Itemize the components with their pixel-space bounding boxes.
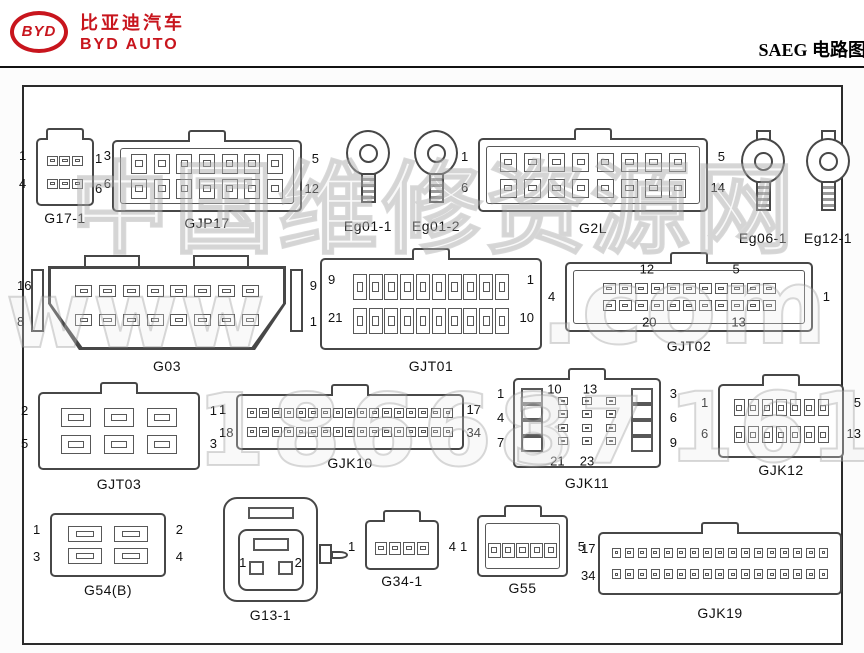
pin: [218, 285, 235, 297]
pin: [267, 179, 283, 199]
connector-label: GJT02: [667, 332, 712, 354]
connector-label: G17-1: [44, 206, 85, 226]
pin: [572, 153, 589, 172]
ring-terminal: [346, 130, 390, 203]
pin-number: 1: [460, 540, 467, 553]
pin-grid: [72, 276, 262, 334]
pin: [284, 408, 294, 418]
pin: [664, 548, 673, 558]
pin: [417, 542, 429, 555]
pin-grid: [610, 542, 830, 585]
pin: [131, 179, 147, 199]
connector-GJP17: 15612GJP17: [112, 140, 302, 212]
connector-G55: 15G55: [477, 515, 568, 577]
pin: [767, 569, 776, 579]
ring-terminal: [741, 130, 785, 211]
pin: [75, 285, 92, 297]
connector-body: [223, 497, 318, 602]
pin: [345, 427, 355, 437]
pin: [631, 404, 653, 420]
pin: [296, 408, 306, 418]
pin: [495, 308, 509, 334]
pin: [763, 283, 776, 294]
pin: [699, 300, 712, 311]
pin-number: 21: [328, 311, 342, 324]
big-pin-column: [631, 388, 653, 452]
pin: [603, 300, 616, 311]
connector-G2L: 15614G2L: [478, 138, 708, 212]
pin-number: 2: [176, 523, 183, 536]
pin: [400, 274, 414, 300]
pin-grid: [601, 280, 777, 314]
pin: [767, 548, 776, 558]
connector-GJK10: 1171834GJK10: [236, 394, 464, 450]
pin: [432, 308, 446, 334]
pin-number: 5: [718, 150, 725, 163]
pin: [170, 314, 187, 326]
pin: [488, 543, 501, 558]
top-latch: [331, 384, 369, 396]
pin: [400, 308, 414, 334]
pin: [606, 410, 616, 418]
pin: [147, 435, 177, 454]
pin: [272, 408, 282, 418]
pin-number: 34: [581, 569, 595, 582]
pin: [793, 548, 802, 558]
connector-body: [38, 392, 200, 470]
pin-number: 1: [95, 152, 102, 165]
pin: [715, 569, 724, 579]
pin: [734, 426, 745, 443]
pin: [321, 427, 331, 437]
side-prong: [331, 551, 348, 559]
pin-number: 9: [670, 436, 677, 449]
inner-frame: [238, 529, 304, 591]
pin: [677, 548, 686, 558]
pin: [728, 569, 737, 579]
ring-hole: [359, 144, 378, 163]
pin: [747, 283, 760, 294]
pin: [776, 399, 787, 416]
pin-grid: [374, 536, 430, 560]
pin: [819, 569, 828, 579]
pin: [147, 314, 164, 326]
pin: [558, 410, 568, 418]
pin-number: 21: [550, 454, 564, 467]
pin: [443, 408, 453, 418]
pin: [199, 154, 215, 174]
top-latch: [383, 510, 421, 522]
pin: [267, 154, 283, 174]
pin: [754, 569, 763, 579]
pin-number: 1: [310, 315, 317, 328]
pin: [176, 154, 192, 174]
pin: [612, 548, 621, 558]
pin: [667, 300, 680, 311]
pin-number: 9: [328, 273, 335, 286]
pin: [667, 283, 680, 294]
pin-number: 6: [670, 411, 677, 424]
pin-grid: [551, 394, 623, 448]
pin: [762, 399, 773, 416]
connector-label: GJK19: [697, 595, 742, 621]
pin: [548, 179, 565, 198]
pin-number: 6: [461, 181, 468, 194]
connector-label: G54(B): [84, 577, 132, 598]
pin: [114, 548, 148, 564]
pin: [597, 153, 614, 172]
top-latch: [762, 374, 800, 386]
ring-terminal: [414, 130, 458, 203]
pin-number: 6: [95, 182, 102, 195]
pin: [369, 408, 379, 418]
pin-number: 1: [219, 403, 226, 416]
connector-label: G13-1: [250, 602, 291, 623]
pin-number: 1: [33, 523, 40, 536]
pin: [406, 427, 416, 437]
pin: [416, 274, 430, 300]
pin: [582, 437, 592, 445]
pin: [690, 569, 699, 579]
connector-label: Eg06-1: [739, 220, 787, 246]
mount-bracket: [31, 269, 44, 331]
top-latch: [188, 130, 226, 142]
connector-body: [478, 138, 708, 212]
top-latch: [504, 505, 542, 517]
pin: [715, 283, 728, 294]
pin: [790, 426, 801, 443]
pin: [651, 569, 660, 579]
pin: [131, 154, 147, 174]
pin: [147, 408, 177, 427]
pin: [731, 283, 744, 294]
pin: [572, 179, 589, 198]
pin: [99, 314, 116, 326]
connector-G03: 16981G03: [48, 266, 286, 350]
pin-number: 4: [548, 290, 555, 303]
connector-label: GJK10: [327, 450, 372, 471]
pin: [500, 153, 517, 172]
pin-number: 1: [239, 556, 246, 569]
pin: [544, 543, 557, 558]
pin-grid: [128, 151, 286, 201]
pin-grid: [62, 523, 154, 567]
pin: [75, 314, 92, 326]
connector-label: GJT03: [97, 470, 142, 492]
connector-G13-1: 12G13-1: [223, 497, 318, 602]
pin-number: 1: [527, 273, 534, 286]
pin: [123, 314, 140, 326]
pin-number: 23: [580, 454, 594, 467]
pin: [369, 427, 379, 437]
connector-label: Eg12-1: [804, 220, 852, 246]
pin: [606, 437, 616, 445]
pin-grid: [732, 394, 830, 448]
connector-label: G2L: [579, 212, 607, 236]
top-latch: [46, 128, 84, 140]
connector-G17-1: 1346G17-1: [36, 138, 94, 206]
pin: [741, 569, 750, 579]
top-latch: [568, 368, 606, 380]
pin: [669, 153, 686, 172]
pin: [699, 283, 712, 294]
pin-number: 5: [312, 152, 319, 165]
pin: [621, 179, 638, 198]
pin: [384, 308, 398, 334]
pin: [353, 308, 367, 334]
pin: [645, 153, 662, 172]
pin: [748, 426, 759, 443]
pin: [68, 526, 102, 542]
pin: [558, 424, 568, 432]
pin: [548, 153, 565, 172]
pin-number: 2: [295, 556, 302, 569]
pin: [582, 397, 592, 405]
ring-eyelet-icon: [741, 138, 785, 184]
pin: [369, 274, 383, 300]
pin: [403, 542, 415, 555]
ring-hole: [819, 152, 838, 171]
pin: [278, 561, 293, 575]
pin-number: 12: [305, 182, 319, 195]
pin: [500, 179, 517, 198]
pin: [582, 410, 592, 418]
pin: [147, 285, 164, 297]
pin: [754, 548, 763, 558]
pin: [284, 427, 294, 437]
pin-number: 5: [732, 263, 739, 276]
mount-bracket: [290, 269, 303, 331]
pin-number: 20: [642, 316, 656, 329]
pin-number: 4: [19, 177, 26, 190]
connector-label: G03: [153, 350, 181, 374]
ring-hole: [427, 144, 446, 163]
pin: [218, 314, 235, 326]
pin-grid: [246, 403, 454, 441]
pin: [683, 300, 696, 311]
pin-number: 12: [640, 263, 654, 276]
pin: [59, 179, 70, 189]
pin-number: 1: [701, 396, 708, 409]
connector-body: [50, 513, 166, 577]
pin: [619, 300, 632, 311]
pin: [690, 548, 699, 558]
pin-number: 3: [670, 387, 677, 400]
crimp-stem: [756, 181, 771, 211]
pin: [154, 179, 170, 199]
pin: [728, 548, 737, 558]
pin: [308, 427, 318, 437]
pin: [194, 314, 211, 326]
pin: [448, 274, 462, 300]
pin: [479, 274, 493, 300]
pin: [61, 408, 91, 427]
pin: [382, 408, 392, 418]
pin: [170, 285, 187, 297]
pin-number: 10: [520, 311, 534, 324]
connector-label: GJK12: [758, 458, 803, 478]
pin: [99, 285, 116, 297]
pin: [242, 314, 259, 326]
pin: [47, 156, 58, 166]
pin: [384, 274, 398, 300]
pin: [375, 542, 387, 555]
pin-number: 14: [711, 181, 725, 194]
pin-number: 2: [21, 404, 28, 417]
pin-number: 17: [467, 403, 481, 416]
pin-number: 3: [210, 437, 217, 450]
connector-GJK11: 14736910132123GJK11: [513, 378, 661, 468]
top-latch: [701, 522, 739, 534]
connector-body: [36, 138, 94, 206]
connector-body: [598, 532, 842, 595]
pin: [431, 408, 441, 418]
top-latch: [574, 128, 612, 140]
pin-number: 3: [104, 149, 111, 162]
connector-body: [112, 140, 302, 212]
connector-G54B: 1234G54(B): [50, 513, 166, 577]
pin: [244, 179, 260, 199]
pin: [635, 300, 648, 311]
pin: [703, 569, 712, 579]
pin: [495, 274, 509, 300]
pin: [521, 436, 543, 452]
pin: [597, 179, 614, 198]
connector-label: G55: [509, 577, 537, 596]
pin-number: 10: [547, 382, 561, 395]
pin: [818, 426, 829, 443]
pin-number: 4: [497, 411, 504, 424]
pin: [741, 548, 750, 558]
pin: [333, 427, 343, 437]
pin: [418, 408, 428, 418]
connector-body: [236, 394, 464, 450]
pin-number: 16: [17, 279, 31, 292]
pin-number: 9: [310, 279, 317, 292]
pin: [524, 153, 541, 172]
pin: [790, 399, 801, 416]
pin: [431, 427, 441, 437]
pin: [443, 427, 453, 437]
connector-body: [718, 384, 844, 458]
pin: [479, 308, 493, 334]
connector-Eg01-2: Eg01-2: [408, 130, 464, 214]
pin: [432, 274, 446, 300]
pin: [357, 408, 367, 418]
pin: [222, 179, 238, 199]
pin: [369, 308, 383, 334]
connector-GJT03: 2153GJT03: [38, 392, 200, 470]
pin-number: 13: [731, 316, 745, 329]
pin: [603, 283, 616, 294]
pin: [463, 308, 477, 334]
pin: [619, 283, 632, 294]
pin: [558, 437, 568, 445]
pin: [651, 283, 664, 294]
pin: [651, 548, 660, 558]
pin: [638, 569, 647, 579]
pin: [59, 156, 70, 166]
pin: [154, 154, 170, 174]
pin: [677, 569, 686, 579]
connector-Eg12-1: Eg12-1: [799, 130, 857, 220]
pin-number: 4: [176, 550, 183, 563]
pin: [762, 426, 773, 443]
connector-G34-1: 14G34-1: [365, 520, 439, 570]
pin: [123, 285, 140, 297]
ring-eyelet-icon: [346, 130, 390, 176]
pin-grid: [496, 149, 690, 201]
connector-label: G34-1: [381, 570, 422, 589]
connector-GJT02: 411252013GJT02: [565, 262, 813, 332]
top-latch: [412, 248, 450, 260]
pin: [731, 300, 744, 311]
connector-GJK12: 15613GJK12: [718, 384, 844, 458]
pin: [104, 435, 134, 454]
pin: [68, 548, 102, 564]
pin-number: 34: [467, 426, 481, 439]
pin: [247, 408, 257, 418]
pin: [606, 397, 616, 405]
top-latch: [670, 252, 708, 264]
pin: [199, 179, 215, 199]
pin-number: 6: [104, 177, 111, 190]
pin: [683, 283, 696, 294]
ring-hole: [754, 152, 773, 171]
pin: [242, 285, 259, 297]
pin-number: 13: [583, 382, 597, 395]
pin-grid: [487, 535, 558, 565]
connector-label: GJK11: [565, 468, 609, 491]
pin: [389, 542, 401, 555]
pin-grid: [54, 404, 184, 458]
pin: [296, 427, 306, 437]
connector-GJT01: 912110GJT01: [320, 258, 542, 350]
connector-label: GJP17: [184, 212, 229, 231]
pin: [72, 156, 83, 166]
pin: [176, 179, 192, 199]
pin: [47, 179, 58, 189]
pin: [418, 427, 428, 437]
pin: [763, 300, 776, 311]
pin: [521, 404, 543, 420]
pin: [558, 397, 568, 405]
pin-number: 5: [854, 396, 861, 409]
pin: [806, 569, 815, 579]
pin-number: 1: [461, 150, 468, 163]
pin: [734, 399, 745, 416]
pin: [804, 399, 815, 416]
big-pin-column: [521, 388, 543, 452]
pin-number: 1: [348, 540, 355, 553]
pin: [780, 569, 789, 579]
pin: [631, 436, 653, 452]
pin: [259, 427, 269, 437]
connector-GJK19: 1734GJK19: [598, 532, 842, 595]
pin-number: 5: [21, 437, 28, 450]
pin: [259, 408, 269, 418]
pin: [703, 548, 712, 558]
pin: [222, 154, 238, 174]
pin: [308, 408, 318, 418]
pin: [715, 548, 724, 558]
pin-number: 13: [847, 427, 861, 440]
top-latch: [84, 255, 140, 268]
crimp-stem: [361, 173, 376, 203]
pin: [631, 388, 653, 404]
pin: [333, 408, 343, 418]
ring-eyelet-icon: [414, 130, 458, 176]
